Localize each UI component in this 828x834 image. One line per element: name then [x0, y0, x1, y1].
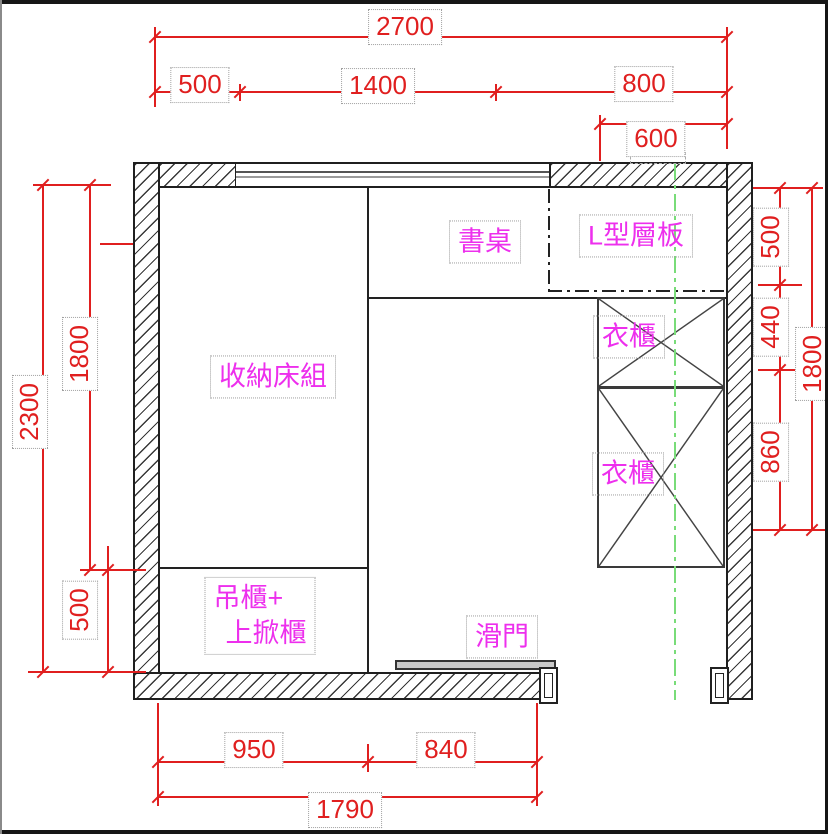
label-desk: 書桌: [449, 220, 521, 263]
cabinet-top-edge-line: [158, 567, 368, 569]
dim-left-upper: 1800: [62, 317, 98, 391]
ext-line: [28, 671, 146, 673]
label-l-shelf: L型層板: [579, 214, 693, 257]
frame-edge-left: [0, 0, 2, 834]
wall-bottom: [133, 672, 557, 700]
door-jamb-right-detail: [715, 673, 724, 698]
dim-right-seg1: 500: [753, 207, 789, 266]
label-sliding-door: 滑門: [466, 615, 538, 658]
dim-bottom-seg1: 950: [224, 732, 283, 768]
label-wardrobe-upper: 衣櫃: [593, 315, 665, 358]
dim-top-seg2: 1400: [341, 68, 415, 104]
dim-top-seg1: 500: [170, 67, 229, 103]
window-glass-line: [236, 171, 549, 173]
wall-left: [133, 162, 160, 700]
dim-bottom-overall: 1790: [308, 792, 382, 828]
door-jamb-left-detail: [544, 673, 553, 698]
dim-right-seg3: 860: [753, 422, 789, 481]
frame-edge-top: [0, 0, 828, 4]
wall-right: [726, 162, 753, 700]
label-cabinet: 吊櫃+ 上掀櫃: [205, 577, 316, 655]
shelf-zone-dashdot-vertical: [548, 189, 550, 292]
dim-right-seg2: 440: [753, 297, 789, 356]
ext-line: [157, 703, 159, 806]
door-jamb-right: [710, 667, 729, 704]
dim-line-bottom-segments: [158, 761, 537, 763]
door-jamb-left: [539, 667, 558, 704]
bed-right-edge-line: [367, 188, 369, 672]
label-storage-bed: 收納床組: [210, 355, 336, 398]
dim-left-overall: 2300: [12, 375, 48, 449]
label-wardrobe-lower: 衣櫃: [592, 452, 664, 495]
label-cabinet-line1: 吊櫃+: [214, 581, 307, 616]
dim-bottom-seg2: 840: [416, 732, 475, 768]
dim-top-sub: 600: [626, 121, 685, 157]
wall-top-right-segment: [549, 162, 753, 188]
dim-line-left-lower: [107, 546, 109, 673]
ext-line: [100, 243, 133, 245]
sliding-door-panel: [395, 660, 556, 670]
shelf-zone-dashdot-horizontal: [548, 290, 726, 292]
dim-right-overall: 1800: [795, 327, 828, 401]
dim-top-seg3: 800: [614, 66, 673, 102]
window-glass-line: [236, 176, 549, 178]
window-top: [236, 162, 549, 188]
dim-left-lower: 500: [62, 580, 98, 639]
ext-line: [753, 529, 825, 531]
ext-line: [536, 703, 538, 806]
floorplan-sheet: 2700 500 1400 800 600 2300 1800 500 500 …: [0, 0, 828, 834]
label-cabinet-line2: 上掀櫃: [214, 616, 307, 651]
dim-top-overall: 2700: [368, 9, 442, 45]
frame-edge-bottom: [0, 830, 828, 834]
